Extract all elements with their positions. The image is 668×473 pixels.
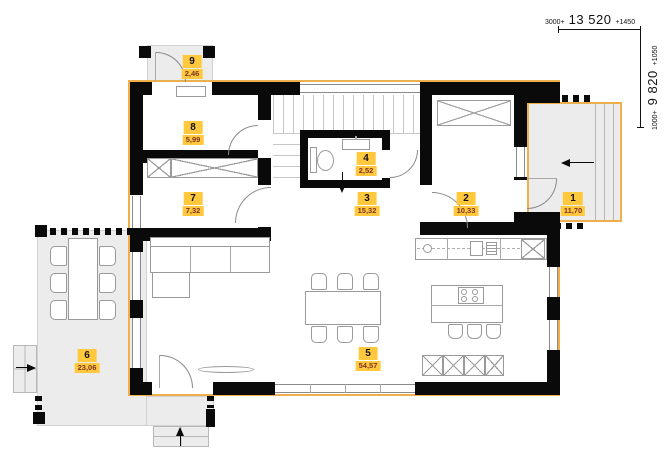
room-number: 1 xyxy=(563,192,583,205)
washing-machine xyxy=(147,158,171,178)
wall-bottom xyxy=(130,382,152,395)
dining-table xyxy=(305,291,381,325)
terrace-chair xyxy=(50,246,67,266)
wall-porch-bottom-stub xyxy=(527,212,560,222)
wall-right-top-stub xyxy=(527,95,560,103)
wall-left xyxy=(130,300,143,318)
room-number: 8 xyxy=(183,121,203,134)
dimension-top: 3000+ 13 520 +1450 xyxy=(545,12,655,27)
stairs-lower-flight xyxy=(273,133,302,188)
terrace-post xyxy=(35,225,47,237)
counter-divider xyxy=(447,238,448,260)
porch-1-edge-dashes xyxy=(562,95,592,102)
sofa-cushion-line xyxy=(230,247,231,272)
wall-right xyxy=(547,350,560,395)
tv-bench xyxy=(198,366,254,373)
bar-stool xyxy=(486,324,501,339)
dining-chair xyxy=(311,326,327,343)
cabinet xyxy=(464,355,485,376)
window-kitchen-right xyxy=(549,320,558,350)
window-room2-porch xyxy=(516,147,525,177)
window-kitchen-right xyxy=(549,267,558,297)
terrace-edge-dashes xyxy=(207,396,214,408)
wardrobe-room2 xyxy=(437,100,511,126)
room-number: 4 xyxy=(356,152,376,165)
room-number: 7 xyxy=(183,192,203,205)
bottom-steps-arrow-tail xyxy=(180,436,181,446)
window-mullion xyxy=(310,384,311,393)
doormat-room8 xyxy=(176,86,206,97)
stairs-upper-flight xyxy=(273,95,420,134)
cabinet xyxy=(485,355,504,376)
terrace-edge-dashes xyxy=(35,396,42,411)
room-area: 23,06 xyxy=(75,363,100,373)
room-area: 5,99 xyxy=(183,135,204,145)
room-badge-3: 3 15,32 xyxy=(355,189,380,216)
terrace-arrow-tail xyxy=(16,367,28,368)
wall-hall-rooms xyxy=(258,95,271,120)
room-badge-7: 7 7,32 xyxy=(183,189,204,216)
door-leaf-porch9 xyxy=(155,52,156,82)
burner-icon xyxy=(472,289,478,295)
sofa-seat xyxy=(150,246,270,273)
room-badge-6: 6 23,06 xyxy=(75,346,100,373)
terrace-post xyxy=(206,409,215,427)
wall-hall-rooms xyxy=(258,158,271,185)
door-leaf-terrace xyxy=(159,355,160,388)
dimension-top-suffix: +1450 xyxy=(615,19,635,26)
dimension-line-right xyxy=(640,32,641,127)
floor-plan-canvas: 9 2,46 8 5,99 7 7,32 4 2,52 3 15,32 2 10… xyxy=(0,0,668,473)
burner-icon xyxy=(472,296,478,302)
wall-left xyxy=(130,95,143,195)
burner-icon xyxy=(461,296,467,302)
sofa-chaise xyxy=(152,272,190,298)
window-mullion xyxy=(345,384,346,393)
island-divider xyxy=(431,305,503,306)
porch-9-post xyxy=(203,46,215,58)
room-area: 11,70 xyxy=(561,206,585,216)
wc-sink-tap xyxy=(355,136,357,140)
window-living-left xyxy=(132,252,141,300)
dimension-top-value: 13 520 xyxy=(569,12,612,27)
room-number: 3 xyxy=(357,192,377,205)
cabinet xyxy=(443,355,464,376)
room-area: 10,33 xyxy=(454,206,479,216)
room-area: 2,46 xyxy=(182,69,203,79)
dimension-tick xyxy=(637,127,644,128)
room-badge-4: 4 2,52 xyxy=(356,149,377,176)
terrace-table xyxy=(68,238,98,320)
dimension-top-prefix: 3000+ xyxy=(545,19,565,26)
room-badge-5: 5 54,57 xyxy=(356,344,381,371)
terrace-chair xyxy=(99,273,116,293)
dining-chair xyxy=(337,273,353,290)
oven-icon xyxy=(470,241,483,256)
room-number: 5 xyxy=(358,347,378,360)
porch-1-step-line xyxy=(595,104,596,220)
entry-arrow-tail xyxy=(570,162,594,163)
terrace-chair xyxy=(50,300,67,320)
room-number: 6 xyxy=(77,349,97,362)
window-living-left xyxy=(132,318,141,368)
kitchen-sink-icon xyxy=(423,244,432,253)
porch-1-step-line xyxy=(604,104,605,220)
room-badge-8: 8 5,99 xyxy=(183,118,204,145)
terrace-chair xyxy=(99,300,116,320)
stairs-direction-arrow-icon xyxy=(338,184,346,193)
dimension-right-value: 9 820 xyxy=(645,70,660,105)
dimension-line-top xyxy=(558,29,640,30)
cabinet xyxy=(422,355,443,376)
dining-chair xyxy=(337,326,353,343)
wall-top xyxy=(420,82,560,95)
room-badge-9: 9 2,46 xyxy=(182,52,203,79)
stairs-arrow-tail xyxy=(342,172,343,184)
window-mullion xyxy=(380,384,381,393)
terrace-strip-floor xyxy=(147,396,214,426)
room-badge-2: 2 10,33 xyxy=(454,189,479,216)
toilet-tank xyxy=(310,147,317,173)
room-area: 2,52 xyxy=(356,166,377,176)
wall-porch-inner xyxy=(514,177,527,180)
fridge xyxy=(521,239,545,259)
toilet-bowl xyxy=(317,150,334,171)
dining-chair xyxy=(311,273,327,290)
window-top-stairs xyxy=(300,84,420,93)
wall-right xyxy=(547,297,560,320)
porch-1-step-line xyxy=(613,104,614,220)
entry-direction-arrow-icon xyxy=(561,159,570,167)
terrace-chair xyxy=(50,273,67,293)
room-area: 15,32 xyxy=(355,206,380,216)
burner-icon xyxy=(461,289,467,295)
room-number: 2 xyxy=(456,192,476,205)
terrace-chair xyxy=(99,246,116,266)
wall-top xyxy=(212,82,300,95)
terrace-post xyxy=(33,412,45,424)
terrace-edge-dashes xyxy=(50,228,140,235)
room-number: 9 xyxy=(182,55,202,68)
dining-chair xyxy=(363,273,379,290)
room-badge-1: 1 11,70 xyxy=(561,189,585,216)
dimension-tick xyxy=(558,26,559,33)
wall-right xyxy=(547,235,560,267)
wall-hall-room2 xyxy=(420,95,432,185)
wc-door-opening xyxy=(382,150,390,178)
bottom-steps-arrow-icon xyxy=(176,427,184,436)
wall-porch-inner xyxy=(514,212,527,222)
wall-bottom xyxy=(213,382,275,395)
wall-top xyxy=(130,82,152,95)
window-room7 xyxy=(132,196,141,228)
door-leaf-entry xyxy=(527,178,557,179)
sofa-cushion-line xyxy=(190,247,191,272)
room-area: 54,57 xyxy=(356,361,381,371)
room-area: 7,32 xyxy=(183,206,204,216)
terrace-direction-arrow-icon xyxy=(27,364,36,372)
wall-porch-inner xyxy=(514,95,527,147)
dimension-right: 1000+ 9 820 +1050 xyxy=(645,46,660,130)
dimension-right-prefix: 1000+ xyxy=(652,110,659,130)
wardrobe-room7 xyxy=(171,158,258,178)
bar-stool xyxy=(467,324,482,339)
dishwasher-icon xyxy=(486,242,497,255)
porch-9-post xyxy=(139,46,151,58)
dimension-right-suffix: +1050 xyxy=(652,46,659,66)
dining-chair xyxy=(363,326,379,343)
wall-bottom xyxy=(415,382,560,395)
bar-stool xyxy=(448,324,463,339)
counter-divider xyxy=(500,238,501,260)
